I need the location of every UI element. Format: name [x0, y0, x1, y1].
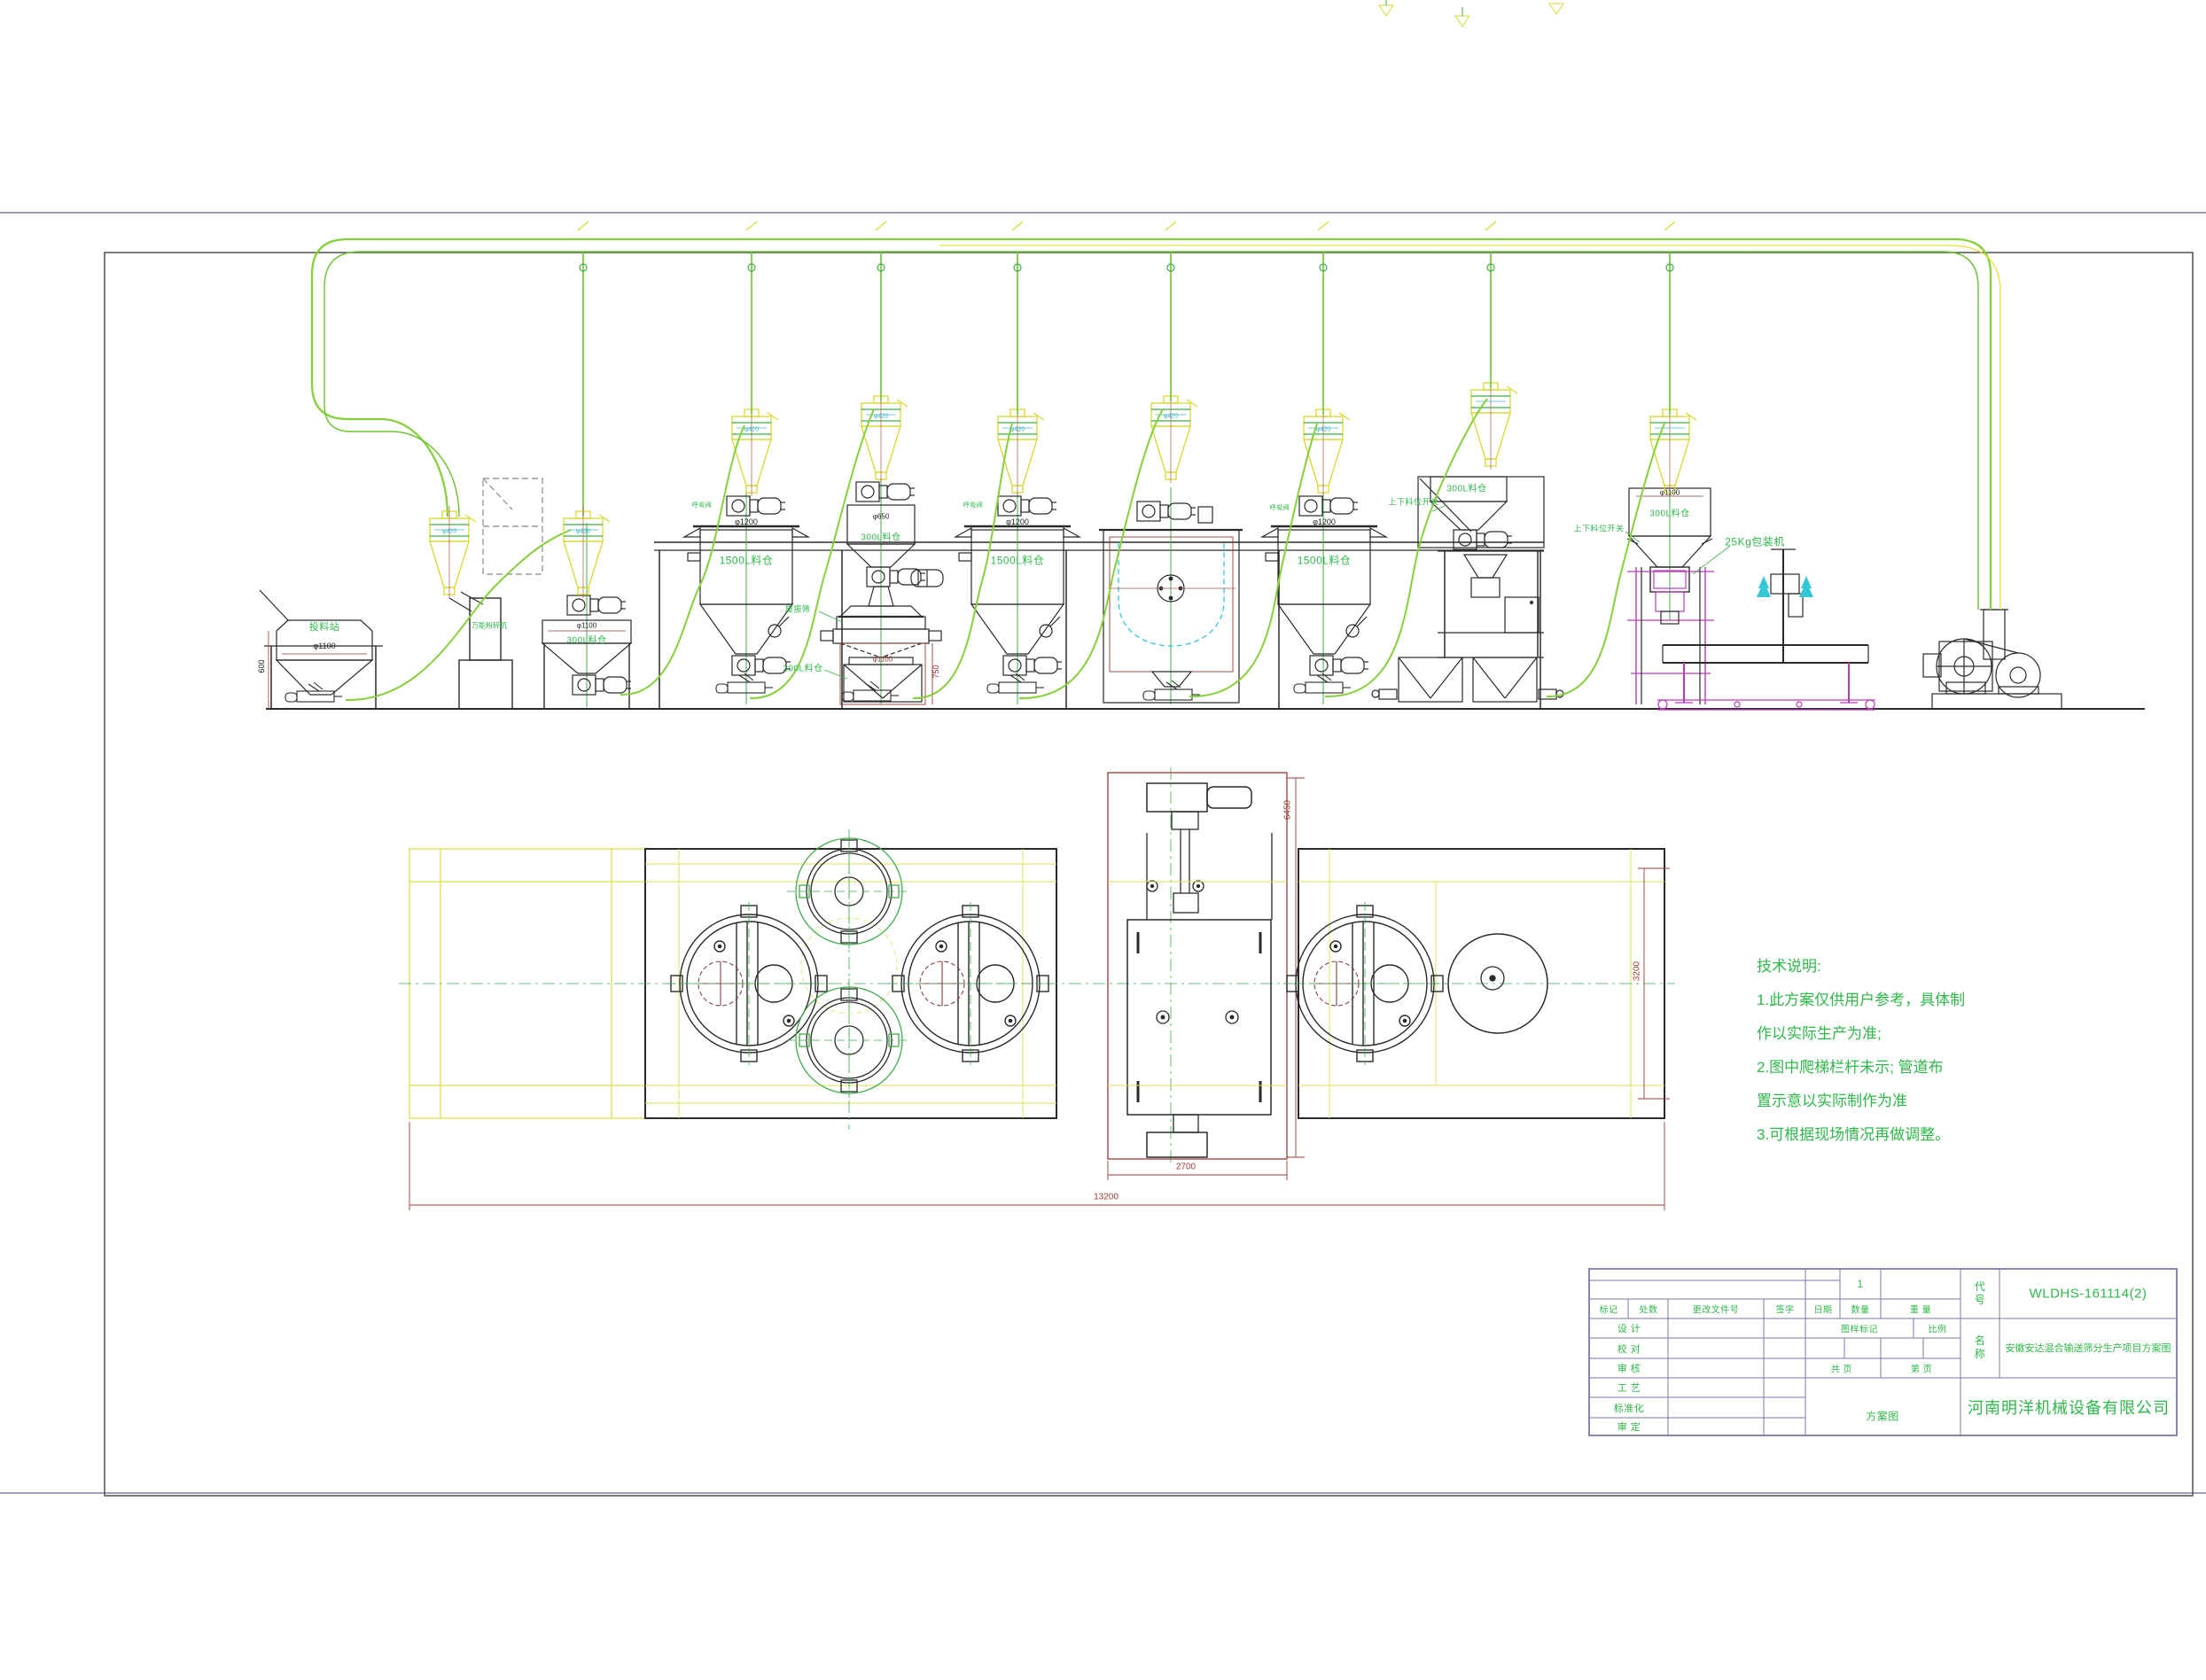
col-qty: 数量 [1851, 1303, 1870, 1316]
cyclone-dim: φ420 [744, 427, 759, 433]
col-doc: 更改文件号 [1693, 1303, 1740, 1316]
level-switch-1-label: 上下料位开关 [1388, 496, 1438, 508]
notes-line: 作以实际生产为准; [1757, 1017, 1965, 1051]
row-approve: 审 定 [1617, 1419, 1641, 1434]
cyclone-dim: φ420 [1316, 427, 1330, 433]
cyclone-dim: φ420 [1010, 427, 1025, 433]
row-standard: 标准化 [1614, 1401, 1645, 1415]
piping [312, 222, 2000, 700]
total-pages: 共 页 [1831, 1362, 1852, 1375]
notes-line: 置示意以实际制作为准 [1757, 1085, 1965, 1118]
company-name: 河南明洋机械设备有限公司 [1968, 1396, 2170, 1419]
cad-sheet: 投料站 φ1100 600 万能粉碎机 φ1100 300L料仓 φ1200 1… [0, 0, 2206, 1680]
blower-drawing [1923, 610, 2062, 709]
col-mark: 标记 [1600, 1303, 1618, 1316]
col-sign: 签字 [1776, 1303, 1795, 1316]
technical-notes: 技术说明: 1.此方案仅供用户参考，具体制 作以实际生产为准; 2.图中爬梯栏杆… [1757, 950, 1965, 1152]
page-no: 第 页 [1911, 1362, 1932, 1375]
packer-25kg-label: 25Kg包装机 [1725, 534, 1785, 549]
plan-total-dim: 13200 [1094, 1193, 1119, 1202]
silo300-4-dim: φ1100 [1660, 489, 1680, 497]
sieve-label: 旋振筛 [785, 603, 811, 615]
qty-value: 1 [1857, 1278, 1863, 1290]
silo1500-1-dim: φ1200 [735, 517, 758, 526]
notes-line: 1.此方案仅供用户参考，具体制 [1757, 984, 1965, 1017]
plan-dimensions [409, 778, 1670, 1210]
pulverizer-drawing [449, 592, 512, 709]
cad-linework [0, 0, 2206, 1680]
plan-depth-dim: 3200 [1633, 961, 1642, 981]
breather-label: 呼吸阀 [963, 501, 984, 509]
plan-width-dim: 2700 [1176, 1163, 1196, 1172]
silo300-2-label: 300L料仓 [861, 530, 900, 543]
silo1500-3-dim: φ1200 [1313, 517, 1336, 526]
feed-station-dim: φ1100 [313, 642, 335, 650]
row-audit: 审 核 [1617, 1361, 1641, 1375]
silo1500-2-dim: φ1200 [1006, 517, 1029, 526]
conveyor-drawing [1657, 549, 1875, 710]
plan-hopper-circle [1283, 902, 1446, 1065]
row-proof: 校 对 [1617, 1342, 1641, 1356]
doc-type: 方案图 [1866, 1409, 1899, 1424]
breather-label: 呼吸阀 [1270, 503, 1290, 512]
feed-station-label: 投料站 [309, 619, 340, 634]
pulverizer-label: 万能粉碎机 [472, 621, 507, 631]
cyclone-icon [430, 506, 476, 598]
elevation-view [260, 377, 2145, 710]
col-count: 处数 [1640, 1303, 1658, 1316]
sieve-height-dim: 750 [932, 665, 940, 678]
silo1500-2-label: 1500L料仓 [991, 553, 1045, 568]
breather-label: 呼吸阀 [692, 501, 713, 509]
cyclone-dim: φ420 [576, 529, 590, 535]
col-weight: 重 量 [1910, 1303, 1931, 1316]
cyclone-dim: φ420 [442, 529, 456, 535]
silo1500-3-label: 1500L料仓 [1298, 553, 1352, 568]
notes-title: 技术说明: [1757, 950, 1965, 984]
stamp-label: 图样标记 [1841, 1322, 1878, 1335]
silo300-2-dim: φ650 [873, 513, 890, 521]
scale-label: 比例 [1929, 1322, 1947, 1335]
drawing-code: WLDHS-161114(2) [2030, 1287, 2148, 1302]
row-craft: 工 艺 [1617, 1381, 1641, 1395]
level-switch-2-label: 上下料位开关 [1573, 523, 1624, 534]
silo300-1-label: 300L料仓 [566, 633, 606, 646]
code-label: 代 号 [1975, 1280, 1986, 1307]
packing-scale-drawing [1372, 477, 1563, 702]
silo200-label: 200L料仓 [783, 661, 822, 674]
cyclone-dim: φ420 [874, 414, 888, 420]
silo1500-3-drawing [1262, 526, 1386, 654]
plan-silo-circle [787, 978, 911, 1102]
shed-outline [483, 478, 542, 574]
silo300-4-label: 300L料仓 [1649, 506, 1689, 519]
silo300-1-dim: φ1100 [577, 622, 596, 630]
drawing-name: 安徽安达混合输送筛分生产项目方案图 [2006, 1341, 2171, 1355]
sieve-dim: φ1100 [873, 656, 893, 664]
notes-line: 2.图中爬梯栏杆未示; 管道布 [1757, 1051, 1965, 1085]
mixer-plan-section [1108, 773, 1287, 1159]
feed-height-dim: 600 [257, 659, 266, 673]
mixer-depth-dim: 6450 [1283, 800, 1293, 820]
silo300-3-label: 300L料仓 [1446, 481, 1486, 494]
name-label: 名 称 [1975, 1334, 1986, 1361]
packer-25kg-drawing [1625, 488, 1730, 704]
row-design: 设 计 [1617, 1321, 1641, 1335]
notes-line: 3.可根据现场情况再做调整。 [1757, 1118, 1965, 1152]
drawing-border [105, 253, 2193, 1496]
silo1500-1-label: 1500L料仓 [720, 553, 774, 568]
col-date: 日期 [1814, 1303, 1833, 1316]
cyclone-dim: φ420 [1164, 414, 1178, 420]
